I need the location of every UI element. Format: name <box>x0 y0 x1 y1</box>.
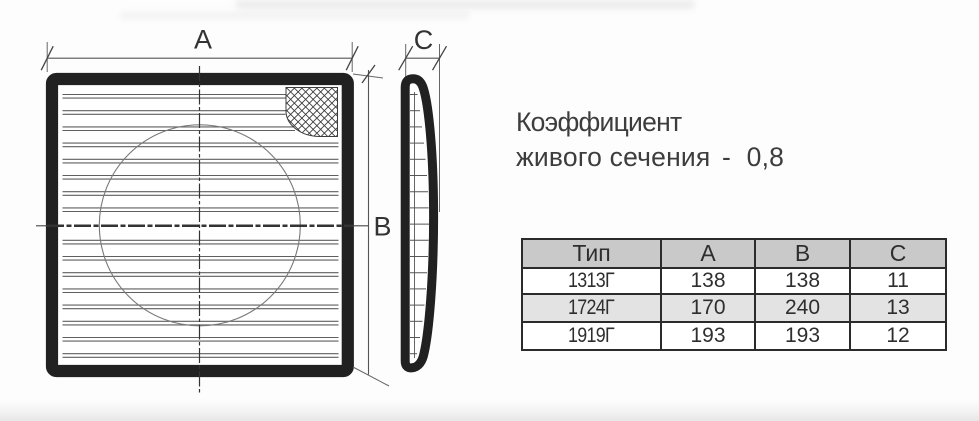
svg-text:B: B <box>373 212 391 242</box>
svg-text:C: C <box>414 25 434 55</box>
svg-text:A: A <box>194 25 212 55</box>
